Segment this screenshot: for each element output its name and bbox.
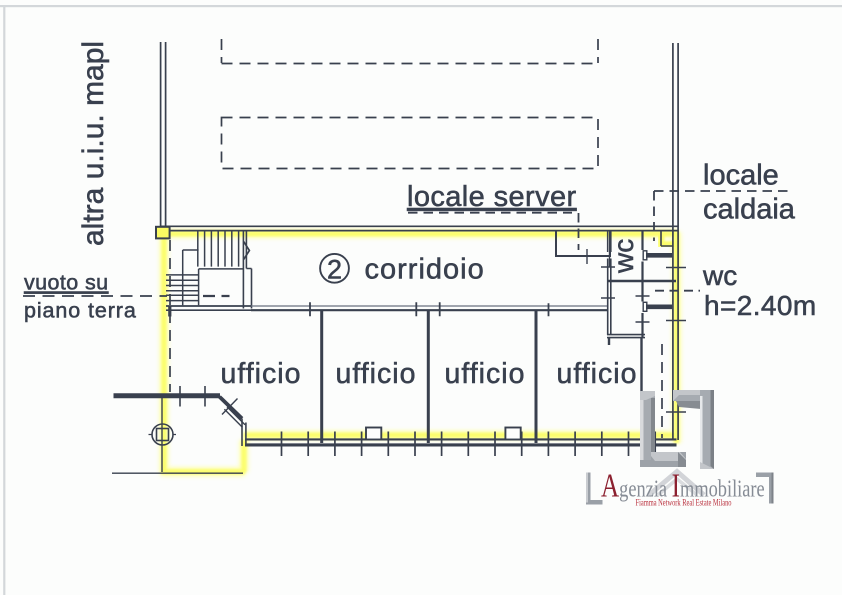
svg-text:corridoio: corridoio bbox=[365, 254, 485, 286]
svg-text:2: 2 bbox=[327, 254, 342, 284]
svg-text:locale: locale bbox=[703, 160, 779, 192]
svg-text:piano terra: piano terra bbox=[24, 299, 137, 323]
svg-text:wc: wc bbox=[702, 260, 737, 291]
svg-text:ufficio: ufficio bbox=[336, 358, 417, 390]
svg-text:wc: wc bbox=[608, 239, 639, 274]
svg-text:caldaia: caldaia bbox=[703, 194, 796, 226]
svg-text:ufficio: ufficio bbox=[221, 358, 302, 390]
svg-text:h=2.40m: h=2.40m bbox=[704, 290, 817, 321]
svg-text:Fiamma Network Real Estate M: Fiamma Network Real Estate Milano bbox=[636, 499, 732, 509]
svg-text:vuoto su: vuoto su bbox=[24, 271, 108, 295]
svg-text:altra u.i.u. mapl: altra u.i.u. mapl bbox=[77, 41, 110, 246]
svg-text:ufficio: ufficio bbox=[557, 358, 638, 390]
svg-text:ufficio: ufficio bbox=[445, 358, 526, 390]
svg-text:locale server: locale server bbox=[407, 181, 577, 213]
